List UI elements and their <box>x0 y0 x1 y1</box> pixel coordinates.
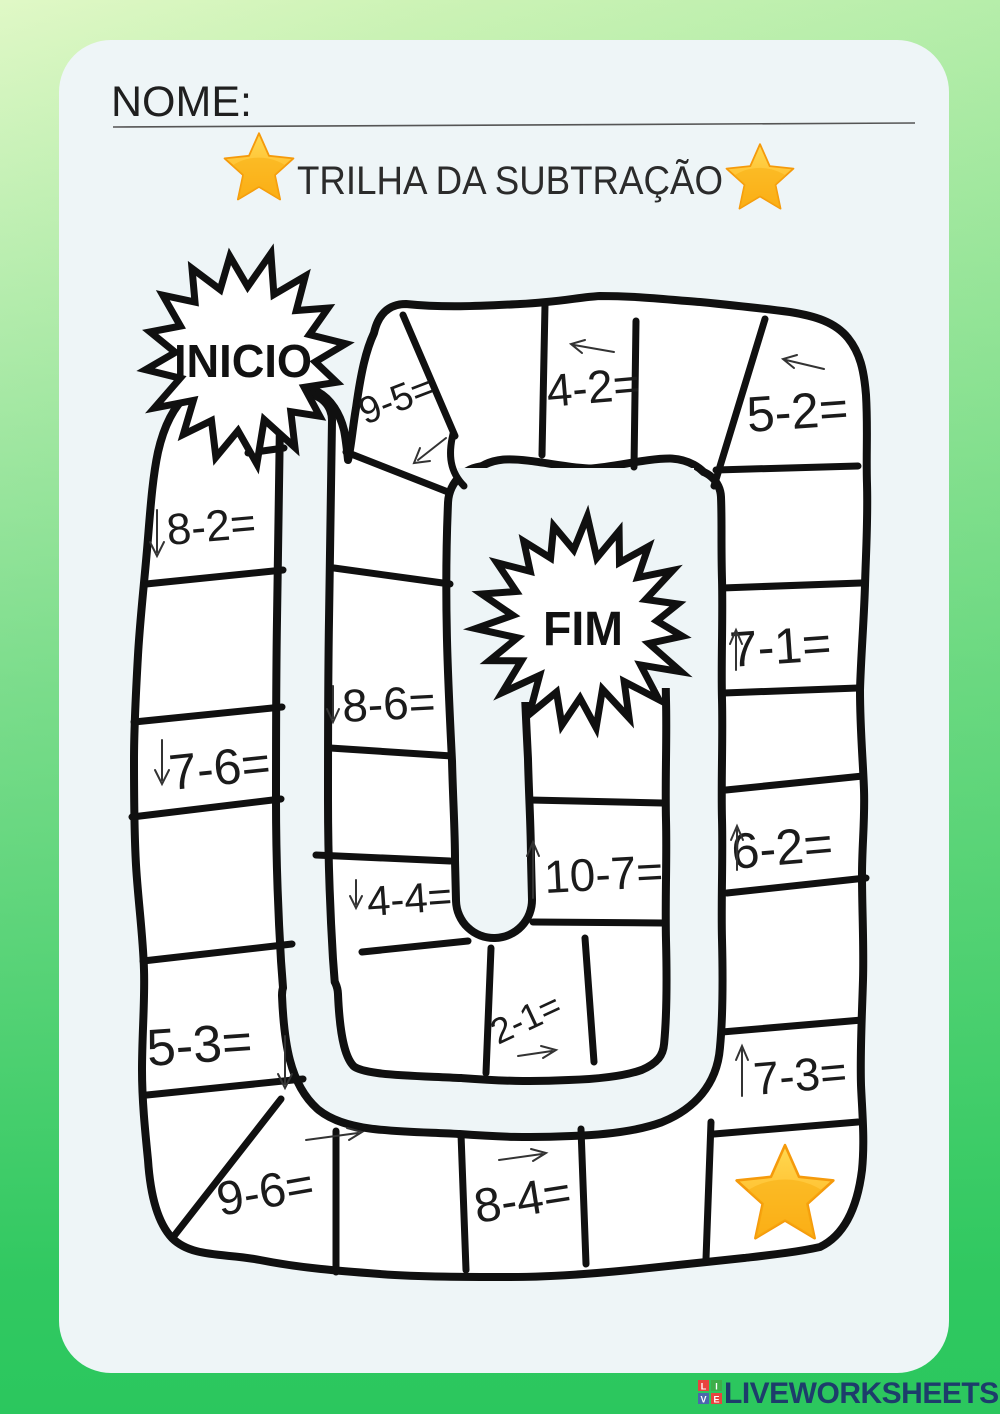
svg-text:V: V <box>700 1395 706 1405</box>
svg-text:6-2=: 6-2= <box>729 815 835 880</box>
svg-text:8-6=: 8-6= <box>341 675 437 732</box>
svg-text:7-6=: 7-6= <box>166 735 273 801</box>
svg-text:7-3=: 7-3= <box>751 1045 849 1105</box>
svg-text:LIVEWORKSHEETS: LIVEWORKSHEETS <box>724 1377 999 1410</box>
svg-text:NOME:: NOME: <box>111 78 252 126</box>
svg-text:8-2=: 8-2= <box>165 498 258 555</box>
svg-text:TRILHA DA SUBTRAÇÃO: TRILHA DA SUBTRAÇÃO <box>297 158 723 203</box>
svg-text:5-3=: 5-3= <box>145 1013 254 1078</box>
svg-text:E: E <box>713 1395 719 1405</box>
svg-text:4-4=: 4-4= <box>365 872 453 925</box>
svg-text:INICIO: INICIO <box>174 335 312 387</box>
svg-text:10-7=: 10-7= <box>543 845 664 903</box>
svg-text:L: L <box>701 1382 707 1392</box>
svg-text:7-1=: 7-1= <box>728 615 833 678</box>
svg-text:5-2=: 5-2= <box>745 380 850 443</box>
svg-text:4-2=: 4-2= <box>544 357 642 417</box>
svg-text:I: I <box>715 1382 718 1392</box>
svg-text:FIM: FIM <box>543 603 623 656</box>
